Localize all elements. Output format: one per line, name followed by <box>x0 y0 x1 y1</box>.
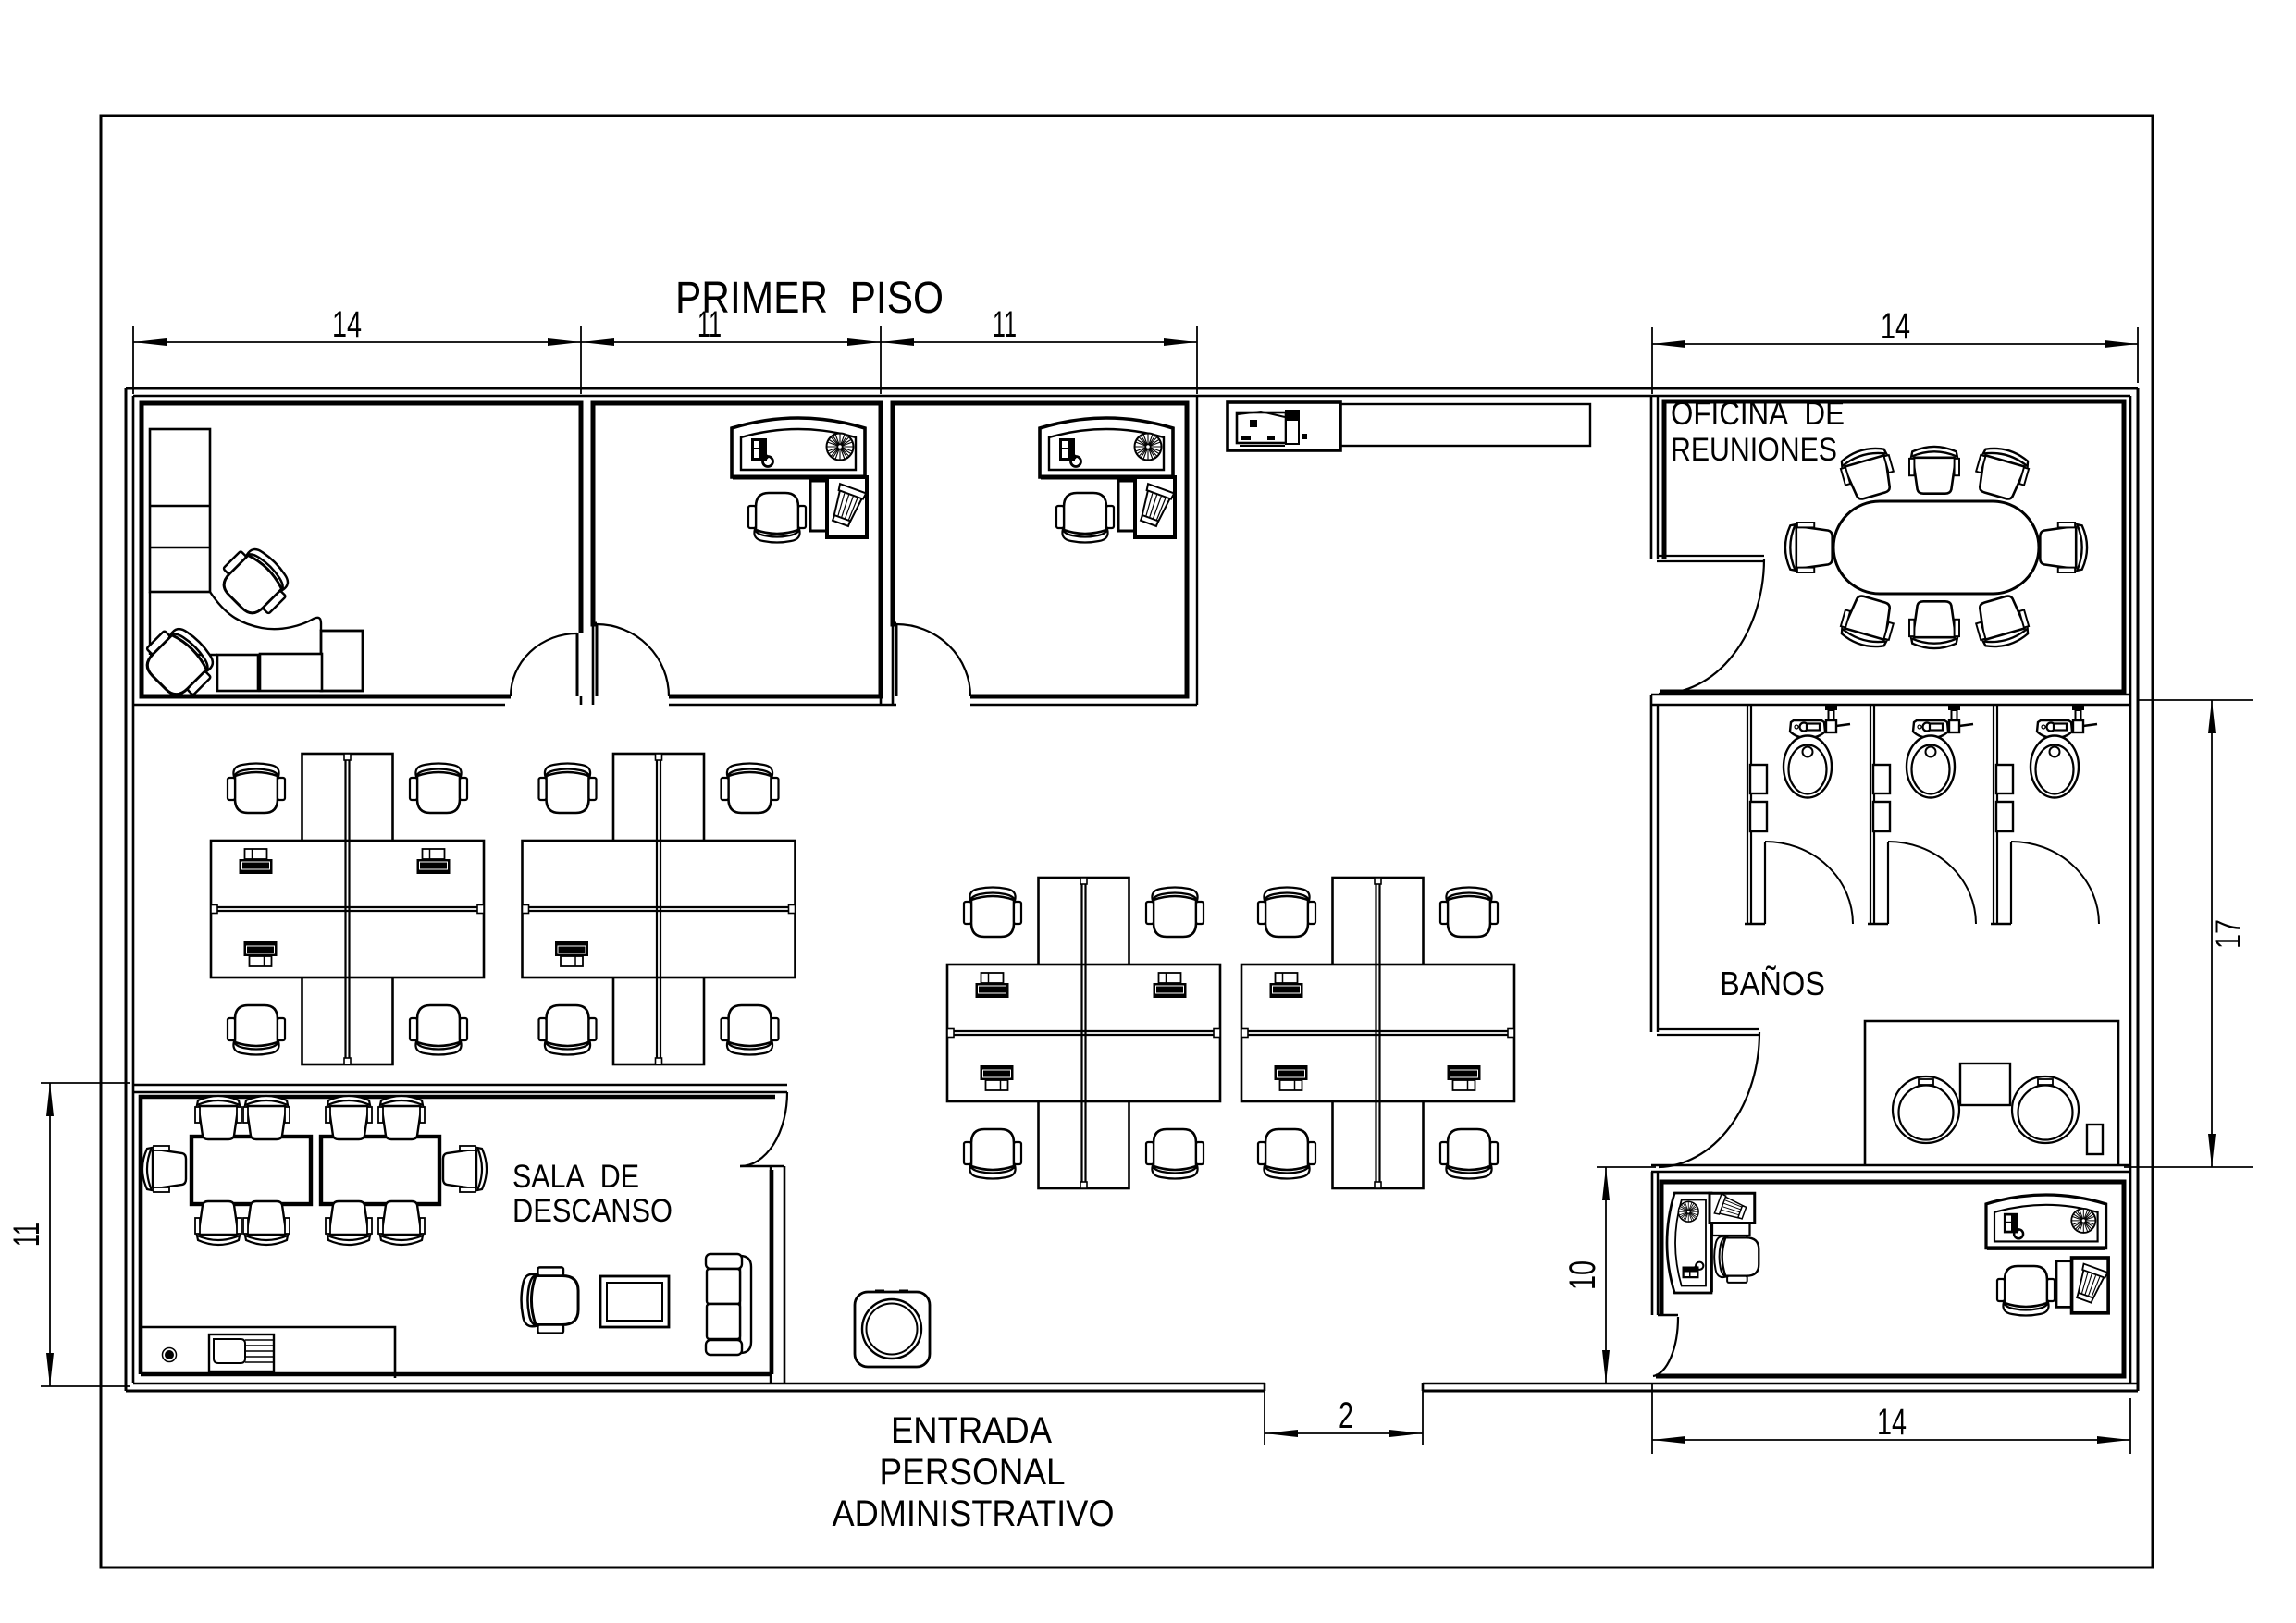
svg-text:11: 11 <box>6 1223 47 1247</box>
svg-text:PRIMER PISO: PRIMER PISO <box>675 274 944 323</box>
svg-text:OFICINA DE: OFICINA DE <box>1671 396 1845 432</box>
svg-text:BAÑOS: BAÑOS <box>1720 965 1825 1002</box>
svg-text:ENTRADA: ENTRADA <box>891 1410 1052 1451</box>
svg-text:14: 14 <box>332 304 362 345</box>
svg-text:PERSONAL: PERSONAL <box>880 1452 1066 1493</box>
svg-text:11: 11 <box>993 304 1017 345</box>
svg-text:REUNIONES: REUNIONES <box>1671 432 1837 468</box>
svg-text:SALA DE: SALA DE <box>512 1159 639 1195</box>
svg-text:DESCANSO: DESCANSO <box>512 1193 673 1229</box>
svg-text:ADMINISTRATIVO: ADMINISTRATIVO <box>833 1494 1115 1534</box>
svg-text:14: 14 <box>1877 1402 1907 1443</box>
svg-text:10: 10 <box>1562 1260 1603 1290</box>
svg-text:2: 2 <box>1339 1396 1353 1436</box>
svg-text:17: 17 <box>2208 919 2249 949</box>
svg-text:14: 14 <box>1881 306 1910 347</box>
